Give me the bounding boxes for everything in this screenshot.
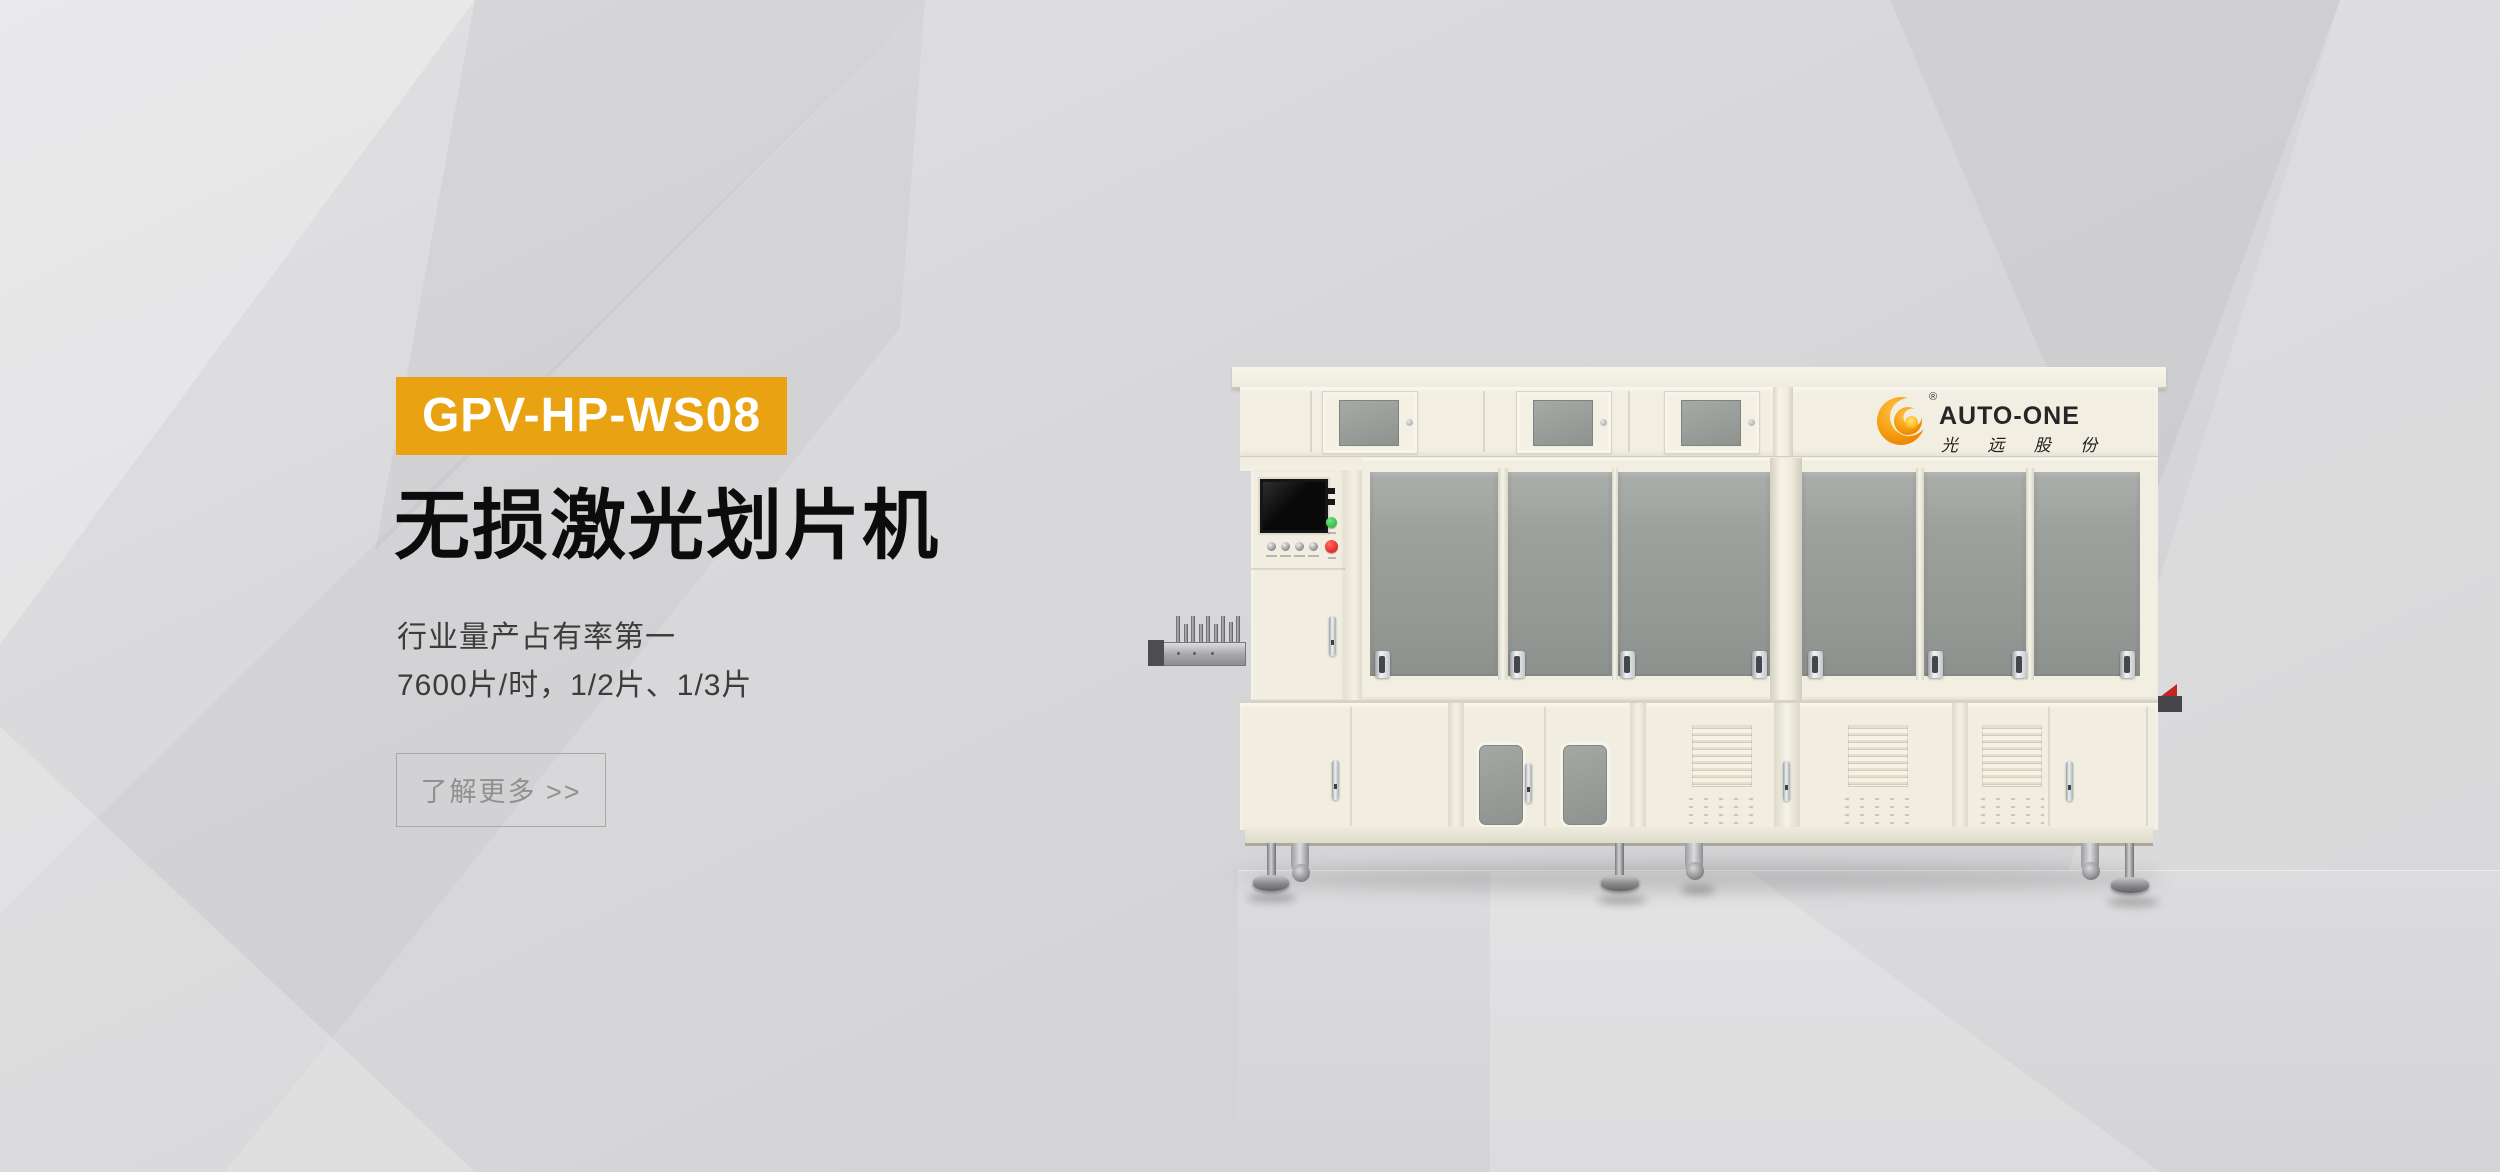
panel-stile — [1952, 703, 1968, 830]
page-title: 无损激光划片机 — [394, 487, 940, 567]
button-label — [1294, 555, 1305, 557]
machine-image: ® AUTO-ONE 光 远 股 份 — [1229, 367, 2170, 920]
conveyor-pin — [1184, 624, 1188, 644]
brand-panel: ® AUTO-ONE 光 远 股 份 — [1793, 387, 2158, 456]
indicator-square — [1327, 499, 1335, 505]
hero-banner: GPV-HP-WS08 无损激光划片机 行业量产占有率第一 7600片/时，1/… — [0, 0, 2500, 1172]
lower-cabinet-section — [1240, 700, 2158, 830]
vent-grid — [1976, 795, 2044, 825]
vent-grid — [1840, 795, 1912, 825]
sliding-glass-door — [1370, 472, 1498, 676]
panel-stile — [1345, 470, 1362, 700]
vent-grid — [1684, 795, 1754, 825]
side-fixture — [2158, 696, 2182, 712]
caster-wheel — [1292, 864, 1310, 882]
conveyor-pin — [1176, 616, 1180, 644]
vent-louver — [1982, 725, 2042, 787]
sliding-glass-door — [1618, 472, 1770, 676]
registered-trademark: ® — [1929, 391, 1937, 403]
leveling-foot-disc — [1601, 875, 1639, 891]
foot-shadow — [2107, 897, 2159, 907]
panel-stile — [1630, 703, 1646, 830]
sliding-glass-door — [2034, 472, 2140, 676]
foot-shadow — [1597, 895, 1647, 905]
window-glass — [1681, 400, 1741, 446]
cabinet-handle — [1332, 760, 1339, 800]
model-badge: GPV-HP-WS08 — [396, 377, 787, 455]
machine-upper-strip: ® AUTO-ONE 光 远 股 份 — [1240, 387, 2158, 458]
door-seam — [1350, 707, 1352, 826]
conveyor-end-cap — [1148, 640, 1164, 666]
panel-button — [1295, 542, 1304, 551]
screw — [1193, 652, 1196, 655]
subtitle-line-1: 行业量产占有率第一 — [397, 612, 676, 656]
screw — [1211, 652, 1214, 655]
cabinet-window — [1479, 745, 1523, 825]
start-light — [1326, 517, 1337, 528]
conveyor-pin — [1214, 624, 1218, 644]
cabinet-window — [1563, 745, 1607, 825]
sliding-glass-door — [1508, 472, 1612, 676]
inspection-window — [1516, 391, 1612, 454]
loader-conveyor — [1148, 614, 1244, 670]
foot-shadow — [1247, 893, 1297, 903]
leveling-foot-disc — [1253, 875, 1289, 891]
button-label — [1328, 532, 1336, 534]
button-label — [1308, 555, 1319, 557]
door-mullion — [2026, 468, 2034, 680]
caster-wheel — [2082, 862, 2100, 880]
window-knob — [1406, 419, 1413, 426]
caster-wheel — [1686, 862, 1704, 880]
door-mullion — [1916, 468, 1924, 680]
control-panel — [1251, 470, 1345, 700]
inspection-window — [1664, 391, 1760, 454]
glass-door-handle — [1620, 651, 1635, 678]
inspection-window — [1322, 391, 1418, 454]
learn-more-button[interactable]: 了解更多 >> — [396, 753, 606, 827]
conveyor-pin — [1199, 624, 1203, 644]
panel-button — [1309, 542, 1318, 551]
door-seam — [2146, 707, 2148, 826]
button-label — [1266, 555, 1277, 557]
window-glass — [1339, 400, 1399, 446]
conveyor-pin — [1206, 616, 1210, 644]
glass-door-handle — [2012, 651, 2027, 678]
glass-door-handle — [1752, 651, 1767, 678]
leveling-foot — [2125, 843, 2134, 879]
glass-door-handle — [2120, 651, 2135, 678]
button-label — [1280, 555, 1291, 557]
vent-louver — [1848, 725, 1908, 787]
sliding-glass-door — [1924, 472, 2026, 676]
glass-door-handle — [1375, 651, 1390, 678]
conveyor-pin — [1236, 616, 1240, 644]
panel-button — [1267, 542, 1276, 551]
machine-top-rim — [1232, 367, 2166, 389]
section-divider — [1770, 458, 1802, 700]
door-handle — [1329, 616, 1336, 656]
panel-stile — [1773, 387, 1793, 456]
panel-button — [1281, 542, 1290, 551]
cabinet-handle — [1783, 761, 1790, 801]
panel-seam — [1310, 391, 1312, 452]
door-seam — [2048, 707, 2050, 826]
subtitle-line-2: 7600片/时，1/2片、1/3片 — [397, 660, 752, 704]
conveyor-pin — [1229, 622, 1233, 644]
panel-seam — [1628, 391, 1630, 452]
indicator-square — [1327, 488, 1335, 494]
glass-door-handle — [1928, 651, 1943, 678]
cabinet-handle — [2066, 761, 2073, 801]
sliding-glass-door — [1802, 472, 1916, 676]
door-seam — [1544, 707, 1546, 826]
button-label — [1328, 557, 1336, 559]
conveyor-pin — [1191, 616, 1195, 644]
glass-door-handle — [1510, 651, 1525, 678]
panel-divider — [1251, 568, 1345, 572]
panel-stile — [1448, 703, 1464, 830]
conveyor-pin — [1221, 616, 1225, 644]
panel-seam — [1483, 391, 1485, 452]
glass-door-section — [1362, 458, 2158, 700]
door-mullion — [1498, 468, 1508, 680]
vent-louver — [1692, 725, 1752, 787]
auto-one-logo-icon — [1875, 393, 1931, 449]
window-knob — [1748, 419, 1755, 426]
window-knob — [1600, 419, 1607, 426]
window-glass — [1533, 400, 1593, 446]
brand-name: AUTO-ONE — [1939, 402, 2080, 431]
glass-door-handle — [1808, 651, 1823, 678]
hmi-screen — [1260, 479, 1328, 533]
leveling-foot-disc — [2111, 877, 2149, 893]
brand-chinese-name: 光 远 股 份 — [1941, 431, 2109, 456]
foot-shadow — [1681, 885, 1715, 895]
leveling-foot — [1267, 843, 1276, 877]
screw — [1177, 652, 1180, 655]
cabinet-handle — [1525, 763, 1532, 803]
leveling-foot — [1615, 843, 1624, 877]
stop-button — [1325, 540, 1338, 553]
